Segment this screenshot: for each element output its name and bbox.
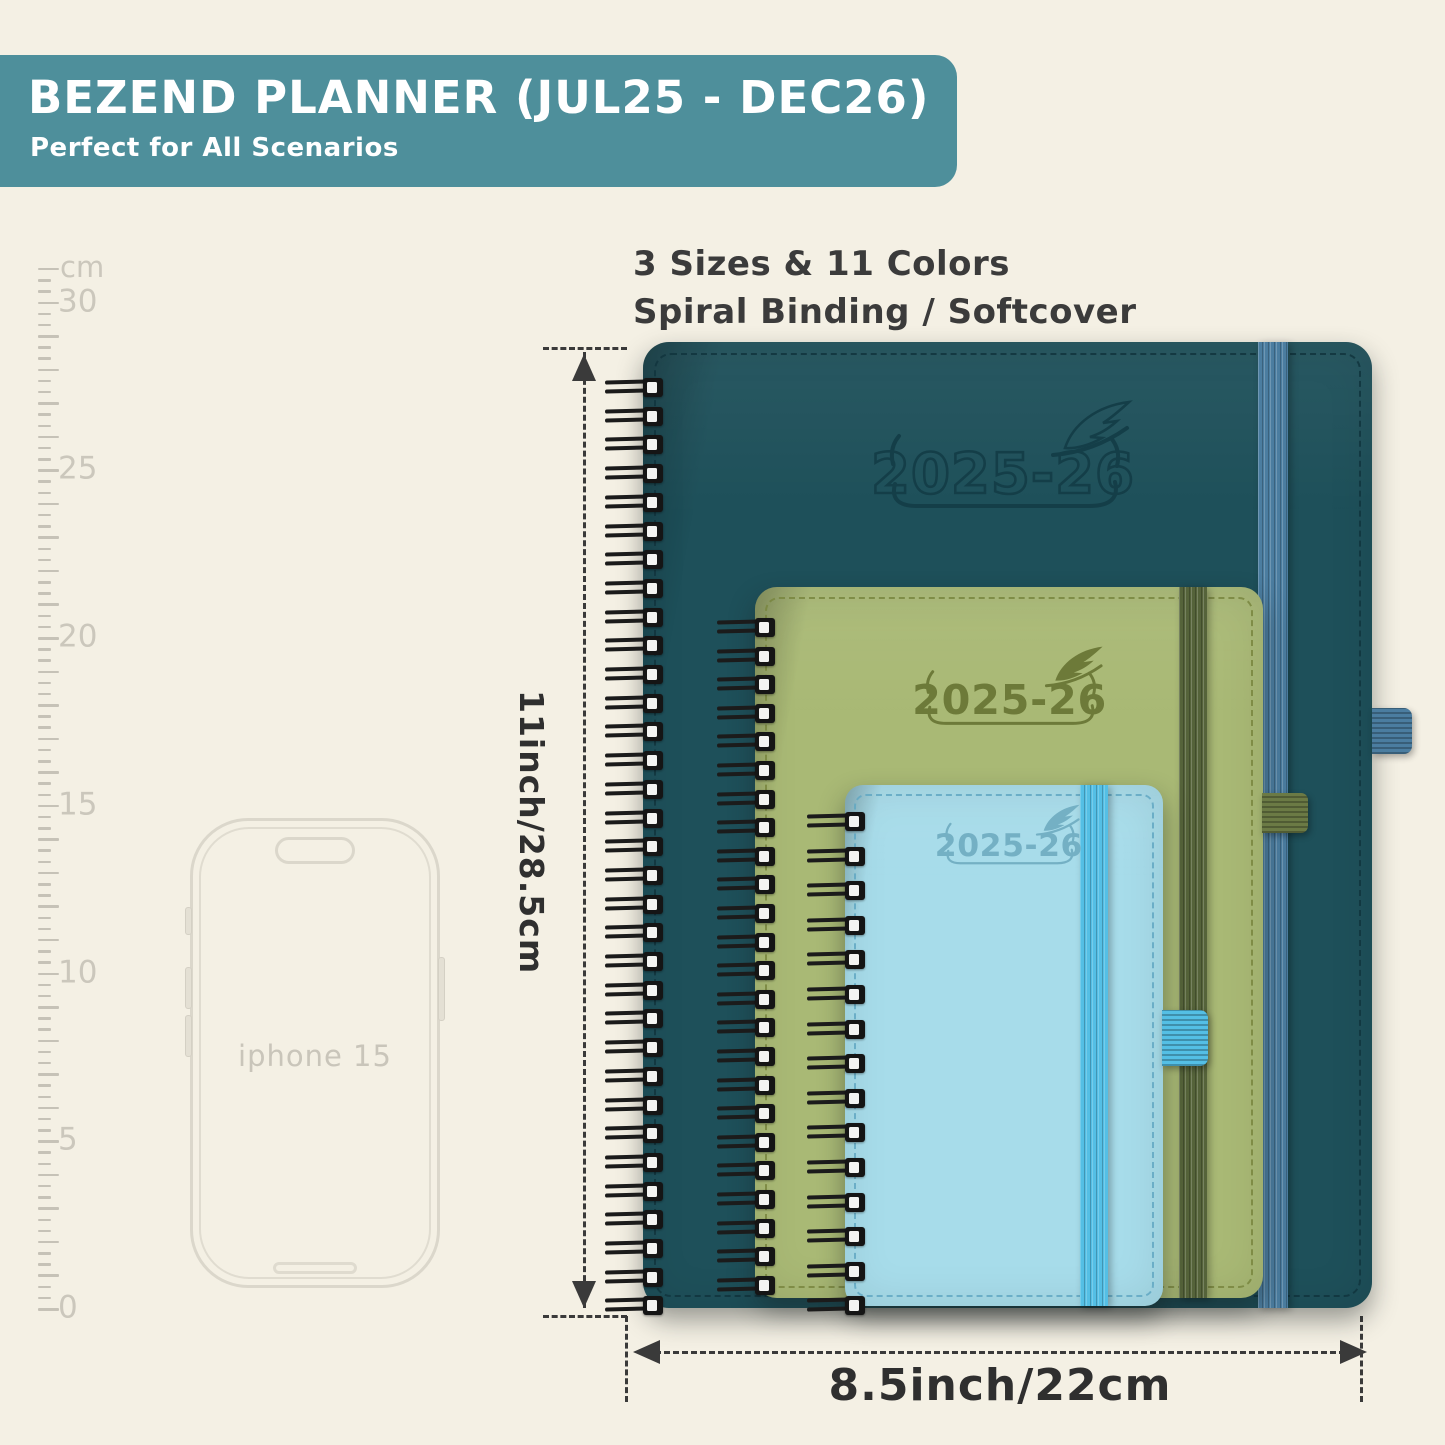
year-emblem-medium: 2025-26 [915,639,1107,731]
year-text-small: 2025-26 [935,828,1083,864]
spiral-loop [717,933,775,952]
spiral-loop [605,866,663,885]
features-line-2: Spiral Binding / Softcover [633,288,1136,336]
ruler-tick [38,1073,59,1076]
ruler-tick [38,1297,51,1300]
ruler-tick [38,805,59,808]
arrow-left-icon [633,1340,660,1364]
ruler-tick [38,659,51,662]
banner-title: BEZEND PLANNER (JUL25 - DEC26) [28,71,929,124]
ruler-tick [38,1252,51,1255]
spiral-loop [717,1161,775,1180]
ruler-tick [38,480,51,483]
ruler-tick [38,436,59,439]
spiral-loop [717,1219,775,1238]
ruler-tick [38,1196,51,1199]
ruler-tick [38,369,59,372]
ruler-tick [38,749,51,752]
ruler-tick [38,905,59,908]
spiral-loop [605,636,663,655]
ruler-tick [38,794,51,797]
ruler-tick [38,838,59,841]
ruler-tick [38,872,59,875]
arrow-down-icon [572,1281,596,1308]
spiral-loop [605,1038,663,1057]
year-text-large: 2025-26 [871,442,1135,507]
ruler-tick [38,1140,59,1143]
ruler-tick [38,939,59,942]
pen-loop-small [1162,1010,1208,1066]
ruler-tick [38,1163,51,1166]
ruler-label: 15 [58,786,97,822]
spiral-loop [605,579,663,598]
spiral-loop [717,1076,775,1095]
ruler-tick [38,1174,59,1177]
height-top-tick [543,347,627,350]
spiral-loop [807,1296,865,1315]
feather-icon [1044,805,1080,831]
action-button [185,907,192,935]
spiral-loop [807,1227,865,1246]
ruler-tick [38,827,51,830]
ruler-tick [38,738,59,741]
stitch-line [854,794,1154,1297]
spiral-loop [605,809,663,828]
spiral-loop [807,985,865,1004]
ruler-tick [38,771,59,774]
spiral-loop [717,847,775,866]
elastic-band-small [1080,785,1108,1306]
spiral-loop [605,895,663,914]
width-dimension-line [655,1351,1345,1354]
arrow-right-icon [1340,1340,1367,1364]
spiral-loop [605,1210,663,1229]
spiral-loop [807,950,865,969]
spiral-loop [717,704,775,723]
spiral-loop [605,1124,663,1143]
ruler-tick [38,380,51,383]
ruler-tick [38,973,59,976]
arrow-up-icon [572,354,596,381]
ruler-tick [38,648,51,651]
ruler-tick [38,950,51,953]
features-text: 3 Sizes & 11 Colors Spiral Binding / Sof… [633,240,1136,336]
ruler-tick [38,324,51,327]
spiral-loop [605,1096,663,1115]
spiral-loop [605,407,663,426]
spiral-loop [717,647,775,666]
spiral-loop [605,435,663,454]
ruler-tick [38,279,51,282]
ruler-tick [38,1219,51,1222]
ruler-tick [38,849,51,852]
ruler-tick [38,861,51,864]
spiral-loop [605,464,663,483]
spiral-loop [605,1296,663,1315]
ruler-tick [38,917,51,920]
spiral-loop [717,675,775,694]
height-dimension-label: 11inch/28.5cm [512,690,551,974]
ruler-tick [38,335,59,338]
ruler-tick [38,704,59,707]
ruler-tick [38,615,51,618]
spiral-loop [605,837,663,856]
spiral-loop [605,1239,663,1258]
ruler-label: 0 [58,1289,78,1325]
spiral-loop [717,818,775,837]
ruler-tick [38,782,51,785]
spiral-loop [605,981,663,1000]
ruler-tick [38,715,51,718]
ruler-tick [38,626,51,629]
ruler-tick [38,503,59,506]
spiral-loop [807,847,865,866]
spiral-loop [717,761,775,780]
ruler-tick [38,682,51,685]
spiral-loop [605,694,663,713]
ruler-tick [38,514,51,517]
ruler-tick [38,1107,59,1110]
speaker-slot [273,1262,357,1274]
ruler-tick [38,1118,51,1121]
spiral-loop [717,904,775,923]
spiral-loop [605,550,663,569]
ruler-unit-label: cm [60,250,104,284]
ruler-tick [38,391,51,394]
year-emblem-large: 2025-26 [875,392,1135,516]
year-emblem-small: 2025-26 [937,799,1083,869]
height-dimension-line [583,352,586,1308]
ruler-tick [38,1274,59,1277]
spiral-loop [807,1158,865,1177]
ruler-tick [38,548,51,551]
spiral-loop [807,1089,865,1108]
spiral-loop [807,881,865,900]
spiral-loop [605,722,663,741]
ruler-tick [38,1286,51,1289]
ruler-label: 25 [58,451,97,487]
ruler-tick [38,1096,51,1099]
spiral-loop [717,875,775,894]
spiral-loop [605,952,663,971]
width-left-tick [625,1316,628,1402]
spiral-loop [807,1123,865,1142]
spiral-loop [717,1247,775,1266]
ruler-tick [38,290,51,293]
ruler-tick [38,1017,51,1020]
ruler-tick [38,1028,51,1031]
spiral-loop [605,1182,663,1201]
ruler-tick [38,1308,59,1311]
ruler-tick [38,883,51,886]
ruler-tick [38,1006,59,1009]
ruler-tick [38,469,59,472]
iphone-label: iphone 15 [193,1039,437,1073]
ruler-tick [38,961,51,964]
spiral-loop [605,665,663,684]
ruler-tick [38,671,59,674]
ruler-tick [38,1230,51,1233]
features-line-1: 3 Sizes & 11 Colors [633,240,1136,288]
ruler-label: 10 [58,954,97,990]
spiral-loop [807,1054,865,1073]
iphone-outline: iphone 15 [190,818,440,1288]
ruler-tick [38,592,51,595]
spiral-loop [717,732,775,751]
spiral-loop [605,522,663,541]
ruler-tick [38,536,59,539]
ruler-tick [38,402,59,405]
ruler-tick [38,1263,51,1266]
banner: BEZEND PLANNER (JUL25 - DEC26) Perfect f… [0,55,957,187]
spiral-loop [717,790,775,809]
volume-up-button [185,967,192,1009]
ruler-tick [38,1185,51,1188]
spiral-loop [717,1104,775,1123]
volume-down-button [185,1015,192,1057]
ruler-tick [38,1051,51,1054]
width-dimension-label: 8.5inch/22cm [700,1360,1300,1411]
spiral-loop [807,916,865,935]
ruler-tick [38,425,51,428]
ruler-label: 5 [58,1122,78,1158]
spiral-loop [717,990,775,1009]
ruler-tick [38,894,51,897]
ruler-tick [38,559,51,562]
elastic-band-medium [1179,587,1207,1298]
spiral-loop [605,923,663,942]
ruler-label: 30 [58,283,97,319]
ruler-tick [38,995,51,998]
pen-loop-medium [1262,793,1308,833]
spiral-loop [717,1276,775,1295]
ruler-tick [38,637,59,640]
ruler-tick [38,570,59,573]
ruler-label: 20 [58,618,97,654]
ruler-tick [38,357,51,360]
spiral-loop [605,1009,663,1028]
spiral-loop [605,608,663,627]
ruler-tick [38,1084,51,1087]
ruler-tick [38,268,59,271]
ruler-tick [38,492,51,495]
power-button [438,957,445,1021]
ruler-tick [38,346,51,349]
ruler-tick [38,581,51,584]
spiral-loop [717,1190,775,1209]
ruler-tick [38,1207,59,1210]
spiral-loop [717,961,775,980]
spiral-loop [807,1193,865,1212]
height-bottom-tick [543,1315,627,1318]
ruler-tick [38,1151,51,1154]
ruler-tick [38,928,51,931]
product-size-infographic: BEZEND PLANNER (JUL25 - DEC26) Perfect f… [0,0,1445,1445]
ruler-tick [38,458,51,461]
spiral-loop [605,751,663,770]
banner-subtitle: Perfect for All Scenarios [30,133,399,163]
ruler-tick [38,413,51,416]
ruler-tick [38,447,51,450]
ruler-tick [38,525,51,528]
ruler-tick [38,726,51,729]
ruler-tick [38,1062,51,1065]
spiral-loop [807,1020,865,1039]
spiral-loop [605,1067,663,1086]
pen-loop-large [1372,708,1412,754]
ruler-tick [38,313,51,316]
ruler-tick [38,760,51,763]
spiral-loop [717,1018,775,1037]
spiral-loop [605,378,663,397]
spiral-loop [605,1268,663,1287]
ruler-tick [38,603,59,606]
ruler-tick [38,1241,59,1244]
spiral-loop [605,780,663,799]
spiral-loop [807,812,865,831]
ruler-tick [38,984,51,987]
ruler-tick [38,693,51,696]
ruler-tick [38,302,59,305]
spiral-loop [807,1262,865,1281]
spiral-loop [717,618,775,637]
spiral-loop [605,1153,663,1172]
dynamic-island [275,837,355,864]
ruler-tick [38,816,51,819]
ruler-tick [38,1129,51,1132]
spiral-loop [605,493,663,512]
spiral-loop [717,1133,775,1152]
spiral-loop [717,1047,775,1066]
ruler-tick [38,1040,59,1043]
year-text-medium: 2025-26 [912,676,1107,724]
